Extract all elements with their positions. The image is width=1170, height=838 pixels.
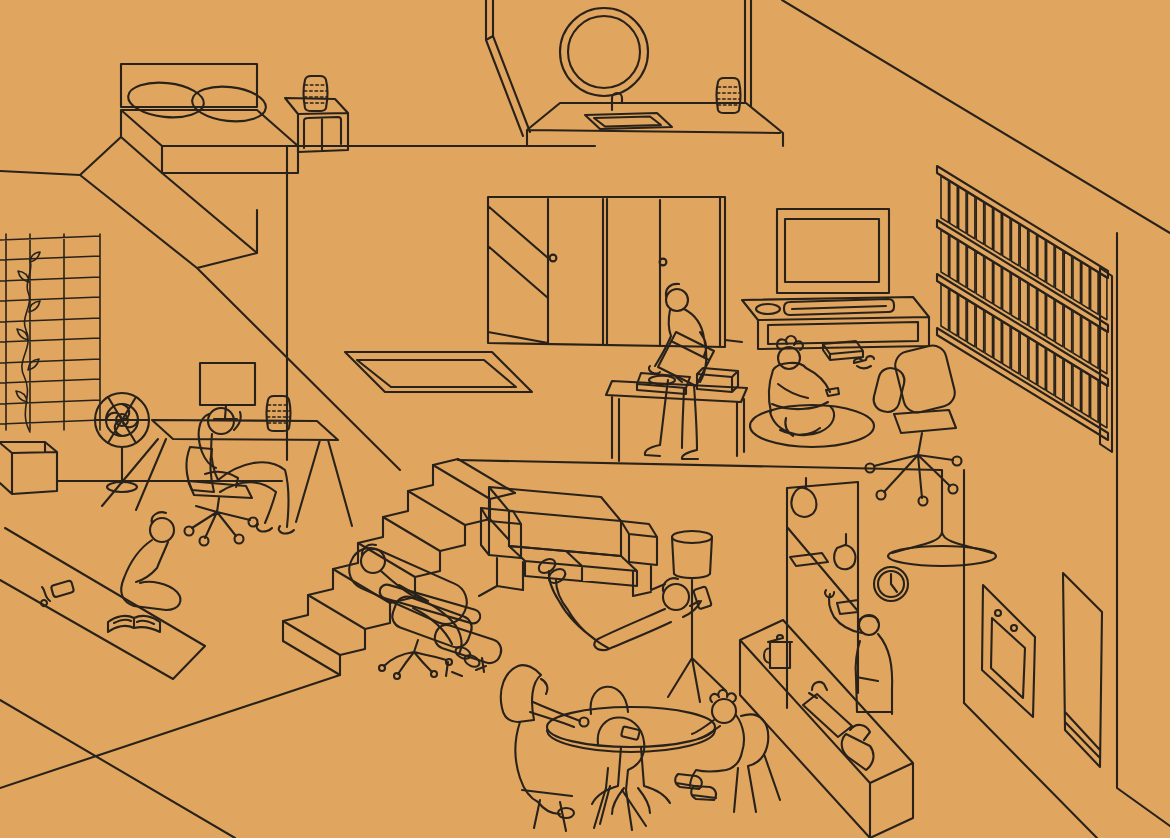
background [0, 0, 1170, 838]
illustration-stage: Isometric line-art cutaway of a two-stor… [0, 0, 1170, 838]
home-cutaway-illustration: Isometric line-art cutaway of a two-stor… [0, 0, 1170, 838]
